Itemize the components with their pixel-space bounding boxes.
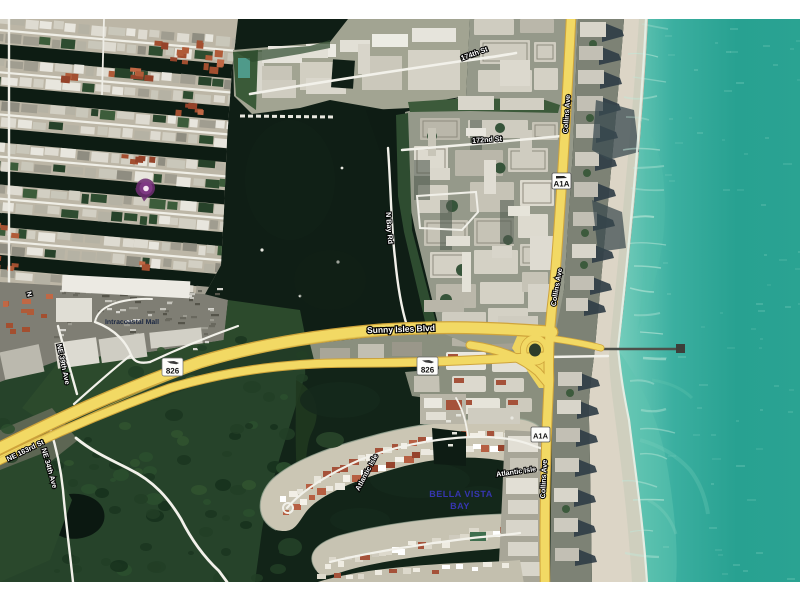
svg-text:826: 826 [166, 367, 180, 376]
svg-text:826: 826 [421, 366, 435, 375]
svg-text:A1A: A1A [553, 180, 569, 189]
svg-text:BELLA VISTA: BELLA VISTA [429, 489, 493, 499]
svg-text:Intracoastal Mall: Intracoastal Mall [105, 319, 159, 326]
svg-text:BAY: BAY [450, 501, 470, 511]
svg-text:A1A: A1A [533, 432, 549, 441]
